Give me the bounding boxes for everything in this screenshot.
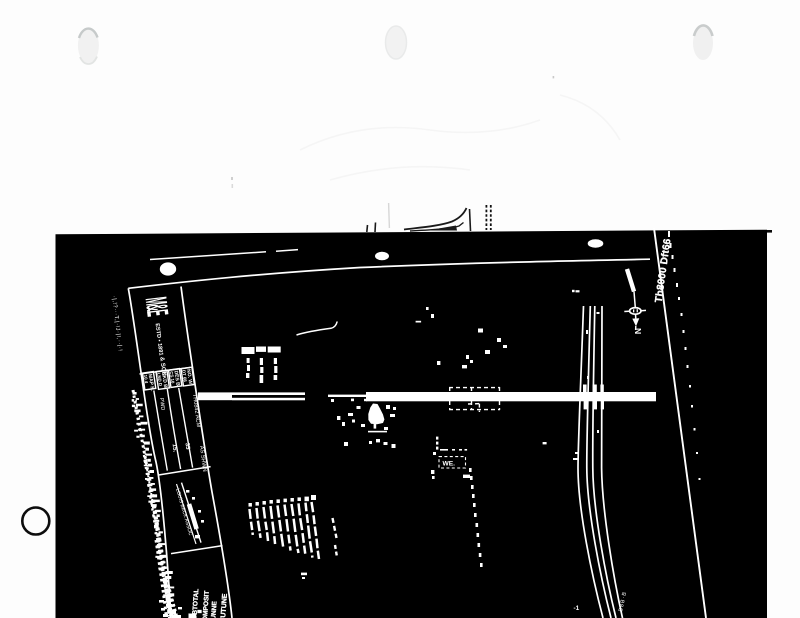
svg-text:-1: -1 xyxy=(574,605,580,612)
svg-text:N: N xyxy=(633,328,643,334)
svg-text:15.: 15. xyxy=(171,444,178,453)
svg-text:FUNNE: FUNNE xyxy=(210,600,219,618)
svg-text:WE.: WE. xyxy=(443,460,456,467)
